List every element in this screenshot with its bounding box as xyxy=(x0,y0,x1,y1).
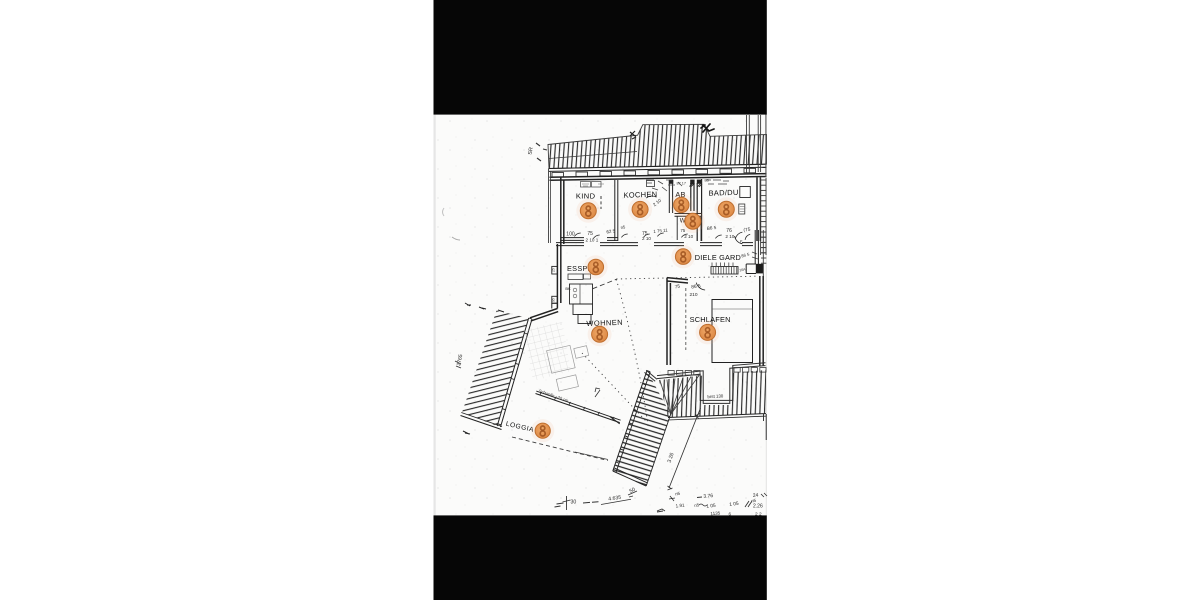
svg-text:1.91: 1.91 xyxy=(675,503,685,509)
svg-text:210: 210 xyxy=(690,292,698,298)
svg-text:DIELE GARD: DIELE GARD xyxy=(695,253,741,262)
svg-text:2 10: 2 10 xyxy=(725,234,734,239)
svg-text:1135: 1135 xyxy=(710,510,721,516)
svg-text:75: 75 xyxy=(587,231,593,237)
svg-text:(75: (75 xyxy=(743,227,751,234)
svg-text:95: 95 xyxy=(552,298,556,302)
svg-text:brst 130: brst 130 xyxy=(707,393,724,399)
svg-text:2.26: 2.26 xyxy=(753,504,763,510)
svg-text:B6 5: B6 5 xyxy=(707,225,717,231)
svg-text:3.76: 3.76 xyxy=(703,493,713,500)
svg-text:87 17: 87 17 xyxy=(677,182,687,186)
svg-text:100: 100 xyxy=(566,232,575,238)
svg-text:25: 25 xyxy=(552,268,556,272)
svg-text:BK: BK xyxy=(565,286,571,291)
svg-text:30: 30 xyxy=(571,499,577,505)
svg-text:1 05: 1 05 xyxy=(706,503,716,510)
svg-text:24: 24 xyxy=(753,492,759,499)
svg-text:B5: B5 xyxy=(705,179,709,183)
svg-text:BAD/DU: BAD/DU xyxy=(708,188,738,198)
svg-text:2 10 1: 2 10 1 xyxy=(586,238,599,243)
